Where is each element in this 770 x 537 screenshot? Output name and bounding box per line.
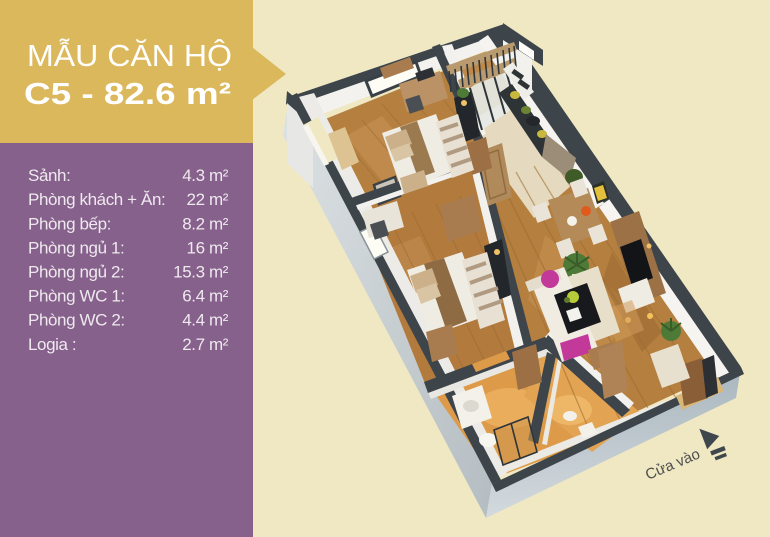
svg-text:15.3 m²: 15.3 m²: [173, 263, 229, 282]
svg-text:Logia :: Logia :: [28, 335, 76, 354]
svg-text:16 m²: 16 m²: [187, 239, 229, 258]
svg-text:2.7 m²: 2.7 m²: [182, 335, 229, 354]
svg-text:8.2 m²: 8.2 m²: [182, 215, 229, 234]
svg-text:22 m²: 22 m²: [187, 190, 229, 209]
svg-text:4.3 m²: 4.3 m²: [182, 166, 229, 185]
svg-text:4.4 m²: 4.4 m²: [182, 311, 229, 330]
svg-text:C5 - 82.6 m²: C5 - 82.6 m²: [24, 76, 231, 111]
svg-text:Sảnh:: Sảnh:: [28, 166, 70, 185]
svg-text:Phòng WC 1:: Phòng WC 1:: [28, 287, 125, 306]
svg-text:6.4 m²: 6.4 m²: [182, 287, 229, 306]
svg-text:Phòng ngủ 1:: Phòng ngủ 1:: [28, 239, 124, 258]
svg-text:Phòng khách + Ăn:: Phòng khách + Ăn:: [28, 190, 165, 209]
svg-text:Phòng bếp:: Phòng bếp:: [28, 215, 111, 234]
svg-text:MẪU CĂN HỘ: MẪU CĂN HỘ: [27, 38, 232, 73]
svg-text:Phòng WC 2:: Phòng WC 2:: [28, 311, 125, 330]
svg-text:Phòng ngủ 2:: Phòng ngủ 2:: [28, 263, 124, 282]
